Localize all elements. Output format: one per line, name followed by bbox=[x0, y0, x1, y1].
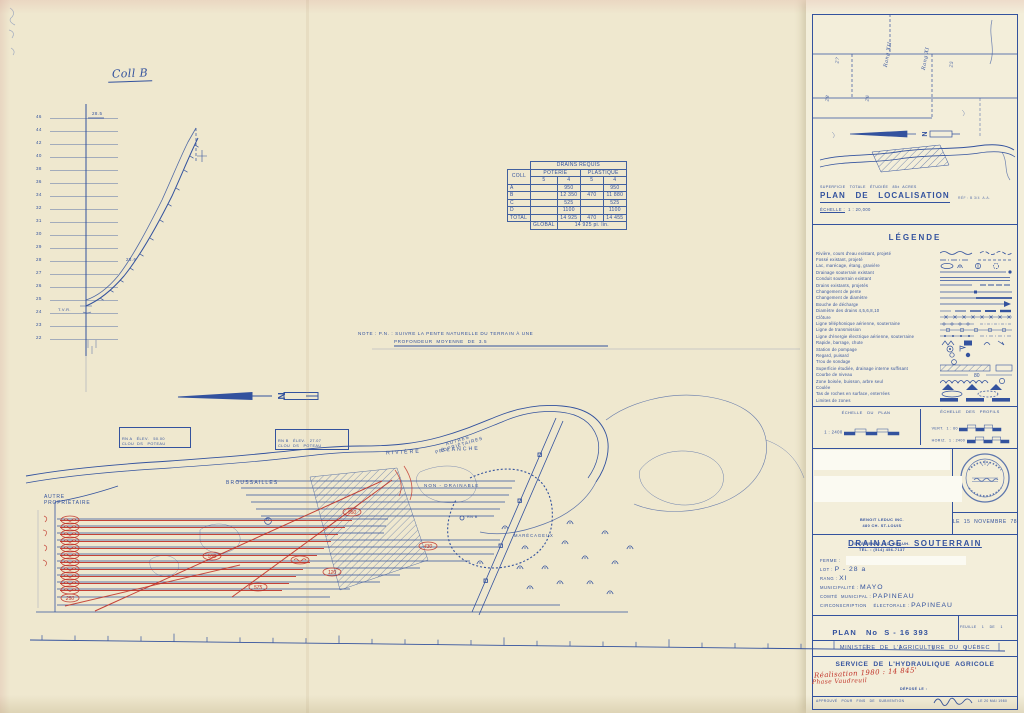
svg-text:250: 250 bbox=[65, 596, 75, 602]
svg-text:530: 530 bbox=[208, 554, 217, 560]
svg-text:950: 950 bbox=[348, 510, 357, 516]
svg-text:575: 575 bbox=[254, 585, 263, 591]
blueprint-sheet: N bbox=[0, 0, 1024, 713]
svg-text:430: 430 bbox=[424, 544, 433, 550]
svg-text:120: 120 bbox=[328, 570, 337, 576]
